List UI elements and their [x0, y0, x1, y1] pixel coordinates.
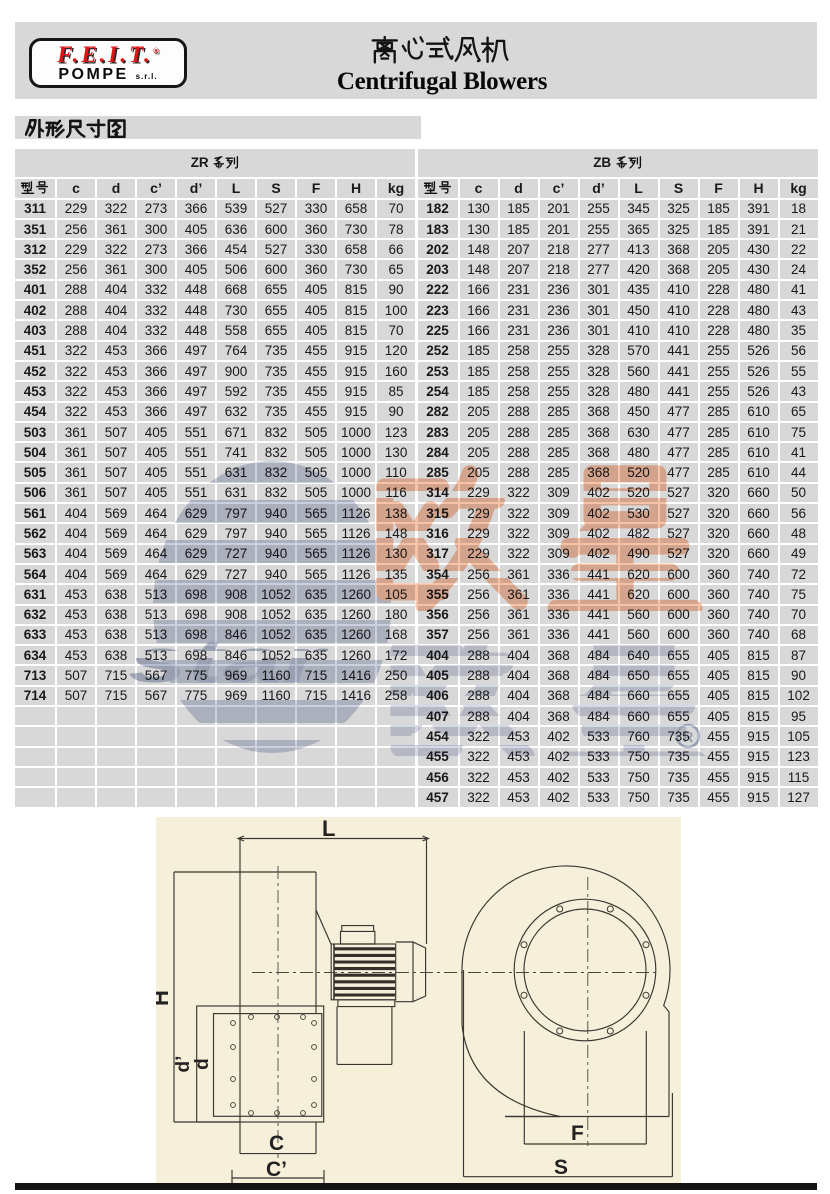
svg-text:d’: d’	[173, 1056, 194, 1073]
svg-text:C: C	[269, 1132, 284, 1155]
svg-text:S: S	[554, 1156, 568, 1179]
svg-text:H: H	[156, 990, 173, 1006]
svg-text:F: F	[571, 1122, 584, 1145]
svg-text:d: d	[192, 1058, 213, 1070]
svg-text:C’: C’	[266, 1158, 287, 1181]
svg-text:L: L	[322, 817, 335, 841]
